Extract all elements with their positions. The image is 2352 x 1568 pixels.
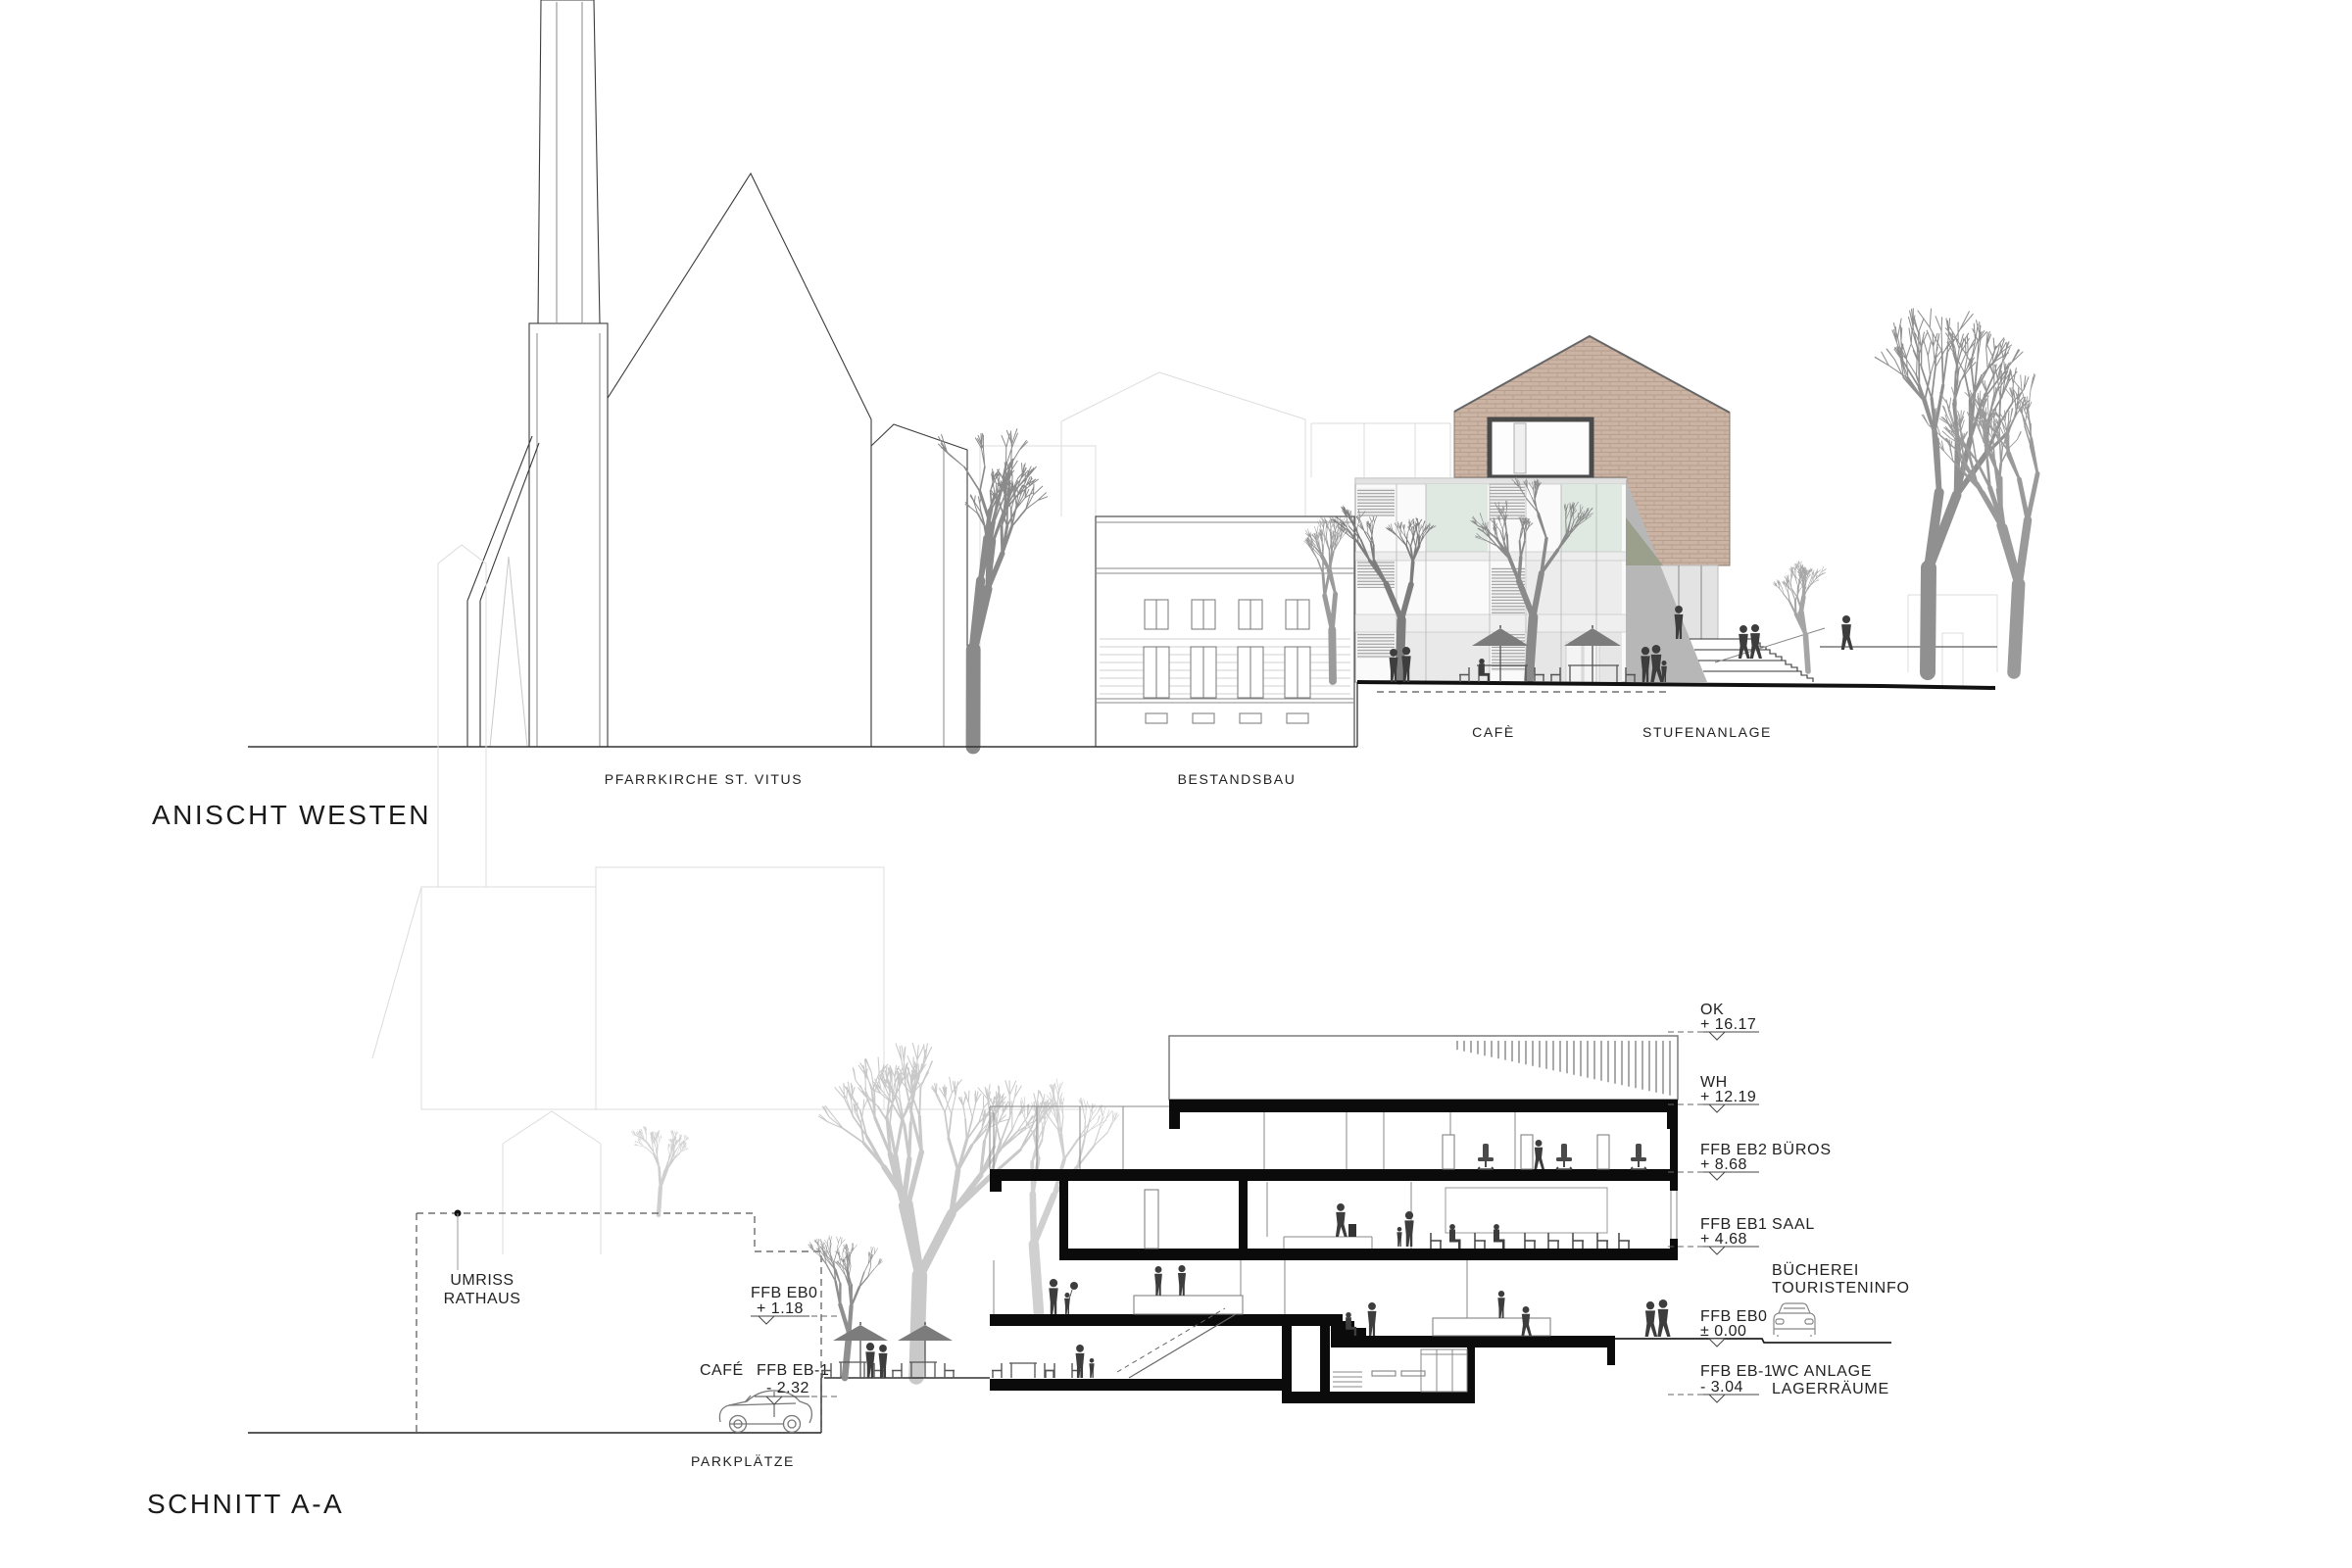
title-section: SCHNITT A-A [147, 1489, 344, 1519]
svg-text:FFB EB-1: FFB EB-1 [1700, 1363, 1773, 1380]
label-cafe-elevation: CAFÈ [1472, 724, 1515, 740]
car-front-icon [1774, 1303, 1815, 1337]
section-a-a: UMRISS RATHAUS PARKPLÄTZE FFB EB0 + 1.18 [147, 545, 1910, 1519]
label-saal: SAAL [1772, 1216, 1815, 1233]
level-marker-ffb-eb2: FFB EB2 + 8.68 BÜROS [1668, 1141, 1832, 1180]
tree [818, 1043, 1054, 1377]
svg-text:+ 12.19: + 12.19 [1700, 1089, 1756, 1105]
tree [631, 1126, 689, 1215]
architectural-sheet: { "titles": { "elevation": "ANISCHT WEST… [0, 0, 2352, 1568]
svg-text:+ 4.68: + 4.68 [1700, 1231, 1747, 1248]
label-stufenanlage: STUFENANLAGE [1642, 724, 1772, 740]
label-cafe-section: CAFÉ [700, 1360, 744, 1379]
level-marker-ffb-eb1: FFB EB1 + 4.68 SAAL [1668, 1216, 1815, 1254]
church-pfarrkirche [467, 0, 967, 747]
terrace-heavy-line [1357, 682, 1995, 688]
svg-text:- 3.04: - 3.04 [1700, 1379, 1743, 1396]
label-lagerraeume: LAGERRÄUME [1772, 1380, 1889, 1397]
svg-text:- 2.32: - 2.32 [766, 1380, 809, 1396]
svg-text:FFB EB-1: FFB EB-1 [757, 1362, 829, 1379]
parkplaetze-area: PARKPLÄTZE [248, 1378, 990, 1469]
svg-text:+ 16.17: + 16.17 [1700, 1016, 1756, 1033]
level-marker-ffb-eb0-left: FFB EB0 + 1.18 [751, 1285, 839, 1324]
gable-window [1490, 419, 1592, 477]
label-rathaus: RATHAUS [444, 1291, 521, 1307]
svg-text:BÜCHEREI: BÜCHEREI [1772, 1261, 1859, 1279]
label-umriss: UMRISS [450, 1272, 514, 1289]
label-bestandsbau: BESTANDSBAU [1178, 771, 1297, 787]
label-pfarrkirche: PFARRKIRCHE ST. VITUS [605, 771, 803, 787]
new-building [1355, 336, 1730, 682]
svg-text:+ 8.68: + 8.68 [1700, 1156, 1747, 1173]
west-elevation: PFARRKIRCHE ST. VITUS BESTANDSBAU CAFÈ S… [152, 0, 2037, 830]
level-marker-ffb-ebm1: FFB EB-1 - 3.04 WC ANLAGE LAGERRÄUME [1668, 1363, 1889, 1402]
level-marker-wh: WH + 12.19 [1668, 1074, 1759, 1112]
level-marker-ok: OK + 16.17 [1668, 1002, 1759, 1040]
label-wc-anlage: WC ANLAGE [1772, 1363, 1872, 1380]
svg-text:± 0.00: ± 0.00 [1700, 1323, 1746, 1340]
section-cafe-furniture [821, 1322, 1082, 1378]
label-buecherei-touristeninfo: BÜCHEREI TOURISTENINFO [1772, 1261, 1910, 1297]
svg-text:+ 1.18: + 1.18 [757, 1300, 804, 1317]
svg-text:TOURISTENINFO: TOURISTENINFO [1772, 1280, 1910, 1297]
svg-text:FFB EB0: FFB EB0 [751, 1285, 817, 1301]
umriss-rathaus-outline: UMRISS RATHAUS [416, 1210, 821, 1434]
label-parkplaetze: PARKPLÄTZE [691, 1453, 795, 1469]
drawing-sheet: PFARRKIRCHE ST. VITUS BESTANDSBAU CAFÈ S… [0, 0, 2352, 1568]
tree [1875, 309, 2030, 672]
stufenanlage-steps [1690, 639, 1813, 682]
title-elevation: ANISCHT WESTEN [152, 800, 431, 830]
level-marker-ffb-eb0: FFB EB0 ± 0.00 [1700, 1303, 1815, 1347]
label-bueros: BÜROS [1772, 1141, 1832, 1158]
level-marker-cafe-ebm1: CAFÉ FFB EB-1 - 2.32 [700, 1360, 839, 1404]
tree [1773, 561, 1827, 671]
